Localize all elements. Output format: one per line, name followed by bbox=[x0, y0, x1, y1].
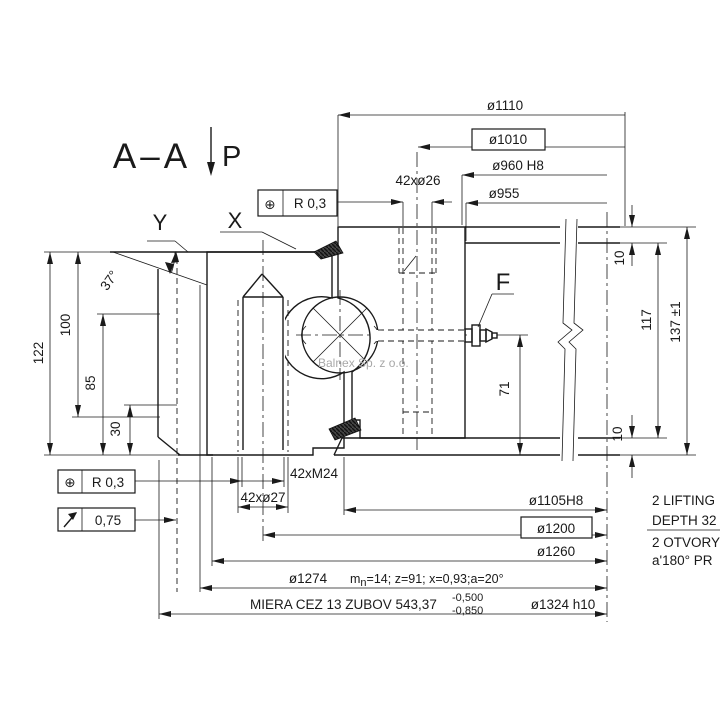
drawing-sheet: ø1110 ø1010 ø960 H8 ø955 42xø26 ⊕ R 0,3 … bbox=[0, 0, 720, 720]
dim-h100: 100 bbox=[58, 314, 73, 337]
break-lines bbox=[558, 219, 583, 461]
dim-d1010: ø1010 bbox=[489, 132, 527, 147]
dim-holes-outer: 42xø26 bbox=[395, 173, 440, 188]
dim-d955: ø955 bbox=[489, 186, 520, 201]
detail-x-label: X bbox=[228, 208, 243, 233]
view-direction-arrow bbox=[207, 162, 215, 176]
section-label: A–A bbox=[113, 137, 191, 176]
detail-ref-f: F bbox=[478, 269, 514, 327]
dim-d960: ø960 H8 bbox=[492, 158, 544, 173]
dim-holes-through: 42xø27 bbox=[240, 490, 285, 505]
dim-h71-text: 71 bbox=[497, 381, 512, 396]
note-line2: DEPTH 32 bbox=[652, 513, 717, 528]
note-line3: 2 OTVORY bbox=[652, 535, 720, 550]
detail-y-label: Y bbox=[153, 210, 168, 235]
fcf-top-symbol: ⊕ bbox=[264, 197, 275, 212]
runout-value: 0,75 bbox=[95, 513, 121, 528]
gear-teeth bbox=[44, 252, 332, 592]
grease-passage bbox=[374, 330, 465, 341]
fcf-bottom-value: R 0,3 bbox=[92, 475, 124, 490]
angle-37: 37° bbox=[97, 268, 121, 293]
dim-d1274: ø1274 bbox=[289, 571, 328, 586]
detail-ref-y: Y bbox=[147, 210, 188, 252]
watermark: Balnex Sp. z o.o. bbox=[318, 356, 409, 370]
fcf-bottom: ⊕ R 0,3 bbox=[58, 470, 135, 493]
dim-h122: 122 bbox=[31, 342, 46, 365]
dim-h10-top: 10 bbox=[612, 250, 627, 265]
measure-tol-upper: -0,500 bbox=[452, 592, 483, 604]
note-line4: a'180° PR bbox=[652, 553, 713, 568]
note-line1: 2 LIFTING bbox=[652, 493, 715, 508]
fcf-bottom-symbol: ⊕ bbox=[64, 475, 75, 490]
dim-d1105: ø1105H8 bbox=[529, 493, 584, 508]
dim-d1324: ø1324 h10 bbox=[531, 597, 596, 612]
dim-right-heights: 10 10 117 137 ±1 bbox=[610, 205, 696, 478]
grease-fitting bbox=[465, 325, 497, 346]
fcf-top-value: R 0,3 bbox=[294, 196, 326, 211]
dim-h85: 85 bbox=[83, 375, 98, 390]
dim-tooth-chamfer-angle: 37° bbox=[97, 251, 179, 293]
dim-h117: 117 bbox=[639, 309, 654, 331]
dim-d1110: ø1110 bbox=[487, 98, 523, 113]
dim-thread-holes: 42xM24 bbox=[135, 457, 339, 487]
dim-d1200: ø1200 bbox=[537, 521, 575, 536]
dim-h10-bottom: 10 bbox=[610, 426, 625, 441]
view-direction-label: P bbox=[222, 141, 241, 173]
dim-top-diameters: ø1110 ø1010 ø960 H8 ø955 bbox=[338, 98, 625, 241]
lower-seal bbox=[329, 418, 361, 440]
dim-h71: 71 bbox=[497, 335, 528, 455]
detail-f-label: F bbox=[496, 269, 511, 296]
fcf-top: ⊕ R 0,3 bbox=[258, 190, 337, 216]
runout-frame: 0,75 bbox=[58, 508, 176, 531]
dim-outer-holes: 42xø26 bbox=[337, 173, 452, 226]
dim-h137: 137 ±1 bbox=[668, 301, 683, 342]
dim-d1260: ø1260 bbox=[537, 544, 575, 559]
measure-tol-lower: -0,850 bbox=[452, 605, 483, 617]
section-header: A–A P bbox=[113, 127, 241, 176]
notes-block: 2 LIFTING DEPTH 32 2 OTVORY a'180° PR bbox=[647, 493, 720, 568]
dim-h30: 30 bbox=[108, 421, 123, 436]
measure-over-teeth: MIERA CEZ 13 ZUBOV 543,37 bbox=[250, 597, 437, 612]
gear-parameters: mn=14; z=91; x=0,93;a=20° bbox=[350, 572, 504, 589]
dim-holes-thread: 42xM24 bbox=[290, 466, 339, 481]
engineering-drawing-canvas: ø1110 ø1010 ø960 H8 ø955 42xø26 ⊕ R 0,3 … bbox=[0, 0, 720, 720]
